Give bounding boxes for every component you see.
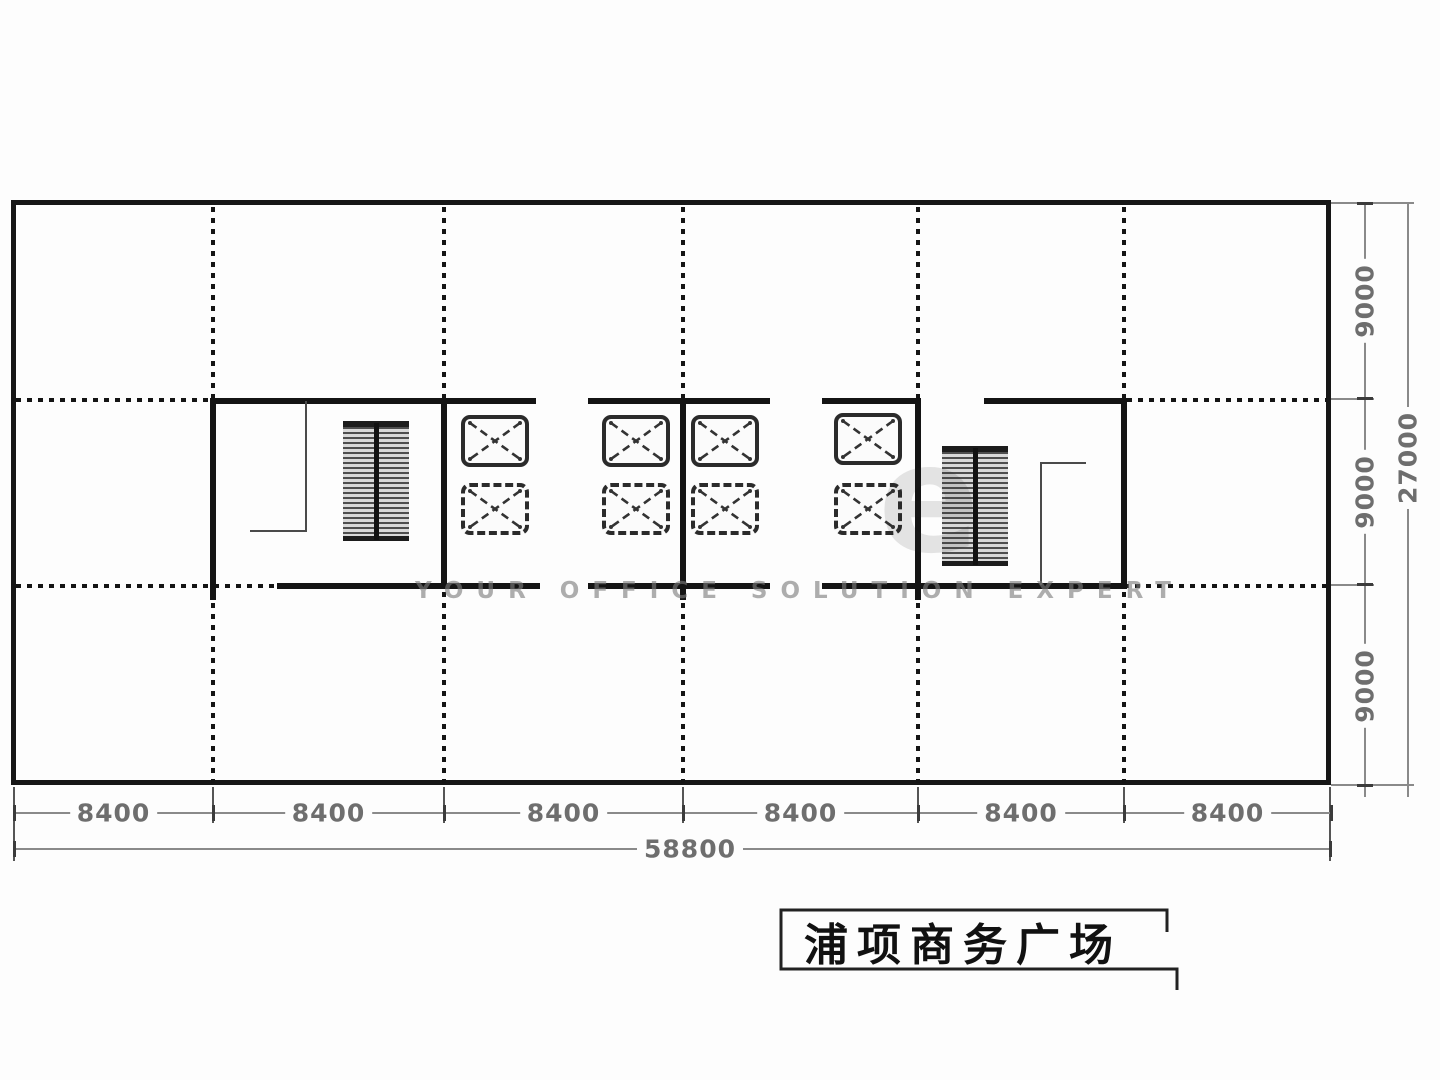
dim-tick <box>1357 202 1373 205</box>
dim-label-bay-width: 8400 <box>1184 799 1272 828</box>
dim-label-bay-height: 9000 <box>1351 644 1380 728</box>
dim-tick <box>443 805 446 821</box>
dim-label-bay-height: 9000 <box>1351 450 1380 534</box>
dim-label-bay-width: 8400 <box>285 799 373 828</box>
dim-label-bay-width: 8400 <box>757 799 845 828</box>
core-wall <box>1121 398 1127 589</box>
drawing-title: 浦项商务广场 <box>804 909 1122 973</box>
elevator-shaft-icon <box>691 415 759 467</box>
core-wall <box>680 398 686 600</box>
dim-tick <box>1330 805 1333 821</box>
stair-icon <box>343 421 409 541</box>
dim-tick <box>917 805 920 821</box>
grid-line-horizontal <box>16 584 278 588</box>
watermark-text: YOUR OFFICE SOLUTION EXPERT <box>415 578 1184 604</box>
grid-line-horizontal <box>16 398 213 402</box>
plan-outline <box>11 200 1331 785</box>
dim-tick <box>1329 841 1332 857</box>
dim-tick <box>682 805 685 821</box>
dim-tick <box>13 841 16 857</box>
handrail-line <box>305 401 307 532</box>
core-wall <box>210 398 536 404</box>
elevator-shaft-icon <box>602 483 670 535</box>
dim-label-bay-width: 8400 <box>977 799 1065 828</box>
dim-label-bay-width: 8400 <box>520 799 608 828</box>
core-wall <box>441 398 447 589</box>
dim-label-bay-height: 9000 <box>1351 259 1380 343</box>
elevator-shaft-icon <box>602 415 670 467</box>
dim-tick <box>1123 805 1126 821</box>
dim-label-total-width: 58800 <box>637 835 743 864</box>
handrail-line <box>1040 462 1042 585</box>
dim-tick <box>212 805 215 821</box>
dim-label-bay-width: 8400 <box>70 799 158 828</box>
dim-tick <box>1357 397 1373 400</box>
handrail-line <box>1040 462 1086 464</box>
dim-tick <box>1357 583 1373 586</box>
core-wall <box>822 398 921 404</box>
elevator-shaft-icon <box>461 483 529 535</box>
elevator-shaft-icon <box>461 415 529 467</box>
grid-line-horizontal <box>1127 398 1327 402</box>
dim-tick <box>13 805 16 821</box>
core-wall <box>984 398 1127 404</box>
dim-label-total-height: 27000 <box>1394 407 1423 509</box>
handrail-line <box>250 530 307 532</box>
watermark-logo: e <box>878 425 980 575</box>
core-wall <box>588 398 770 404</box>
dim-tick <box>1357 784 1373 787</box>
core-wall <box>210 398 216 600</box>
elevator-shaft-icon <box>691 483 759 535</box>
floorplan-canvas: e YOUR OFFICE SOLUTION EXPERT 8400840084… <box>0 0 1440 1080</box>
